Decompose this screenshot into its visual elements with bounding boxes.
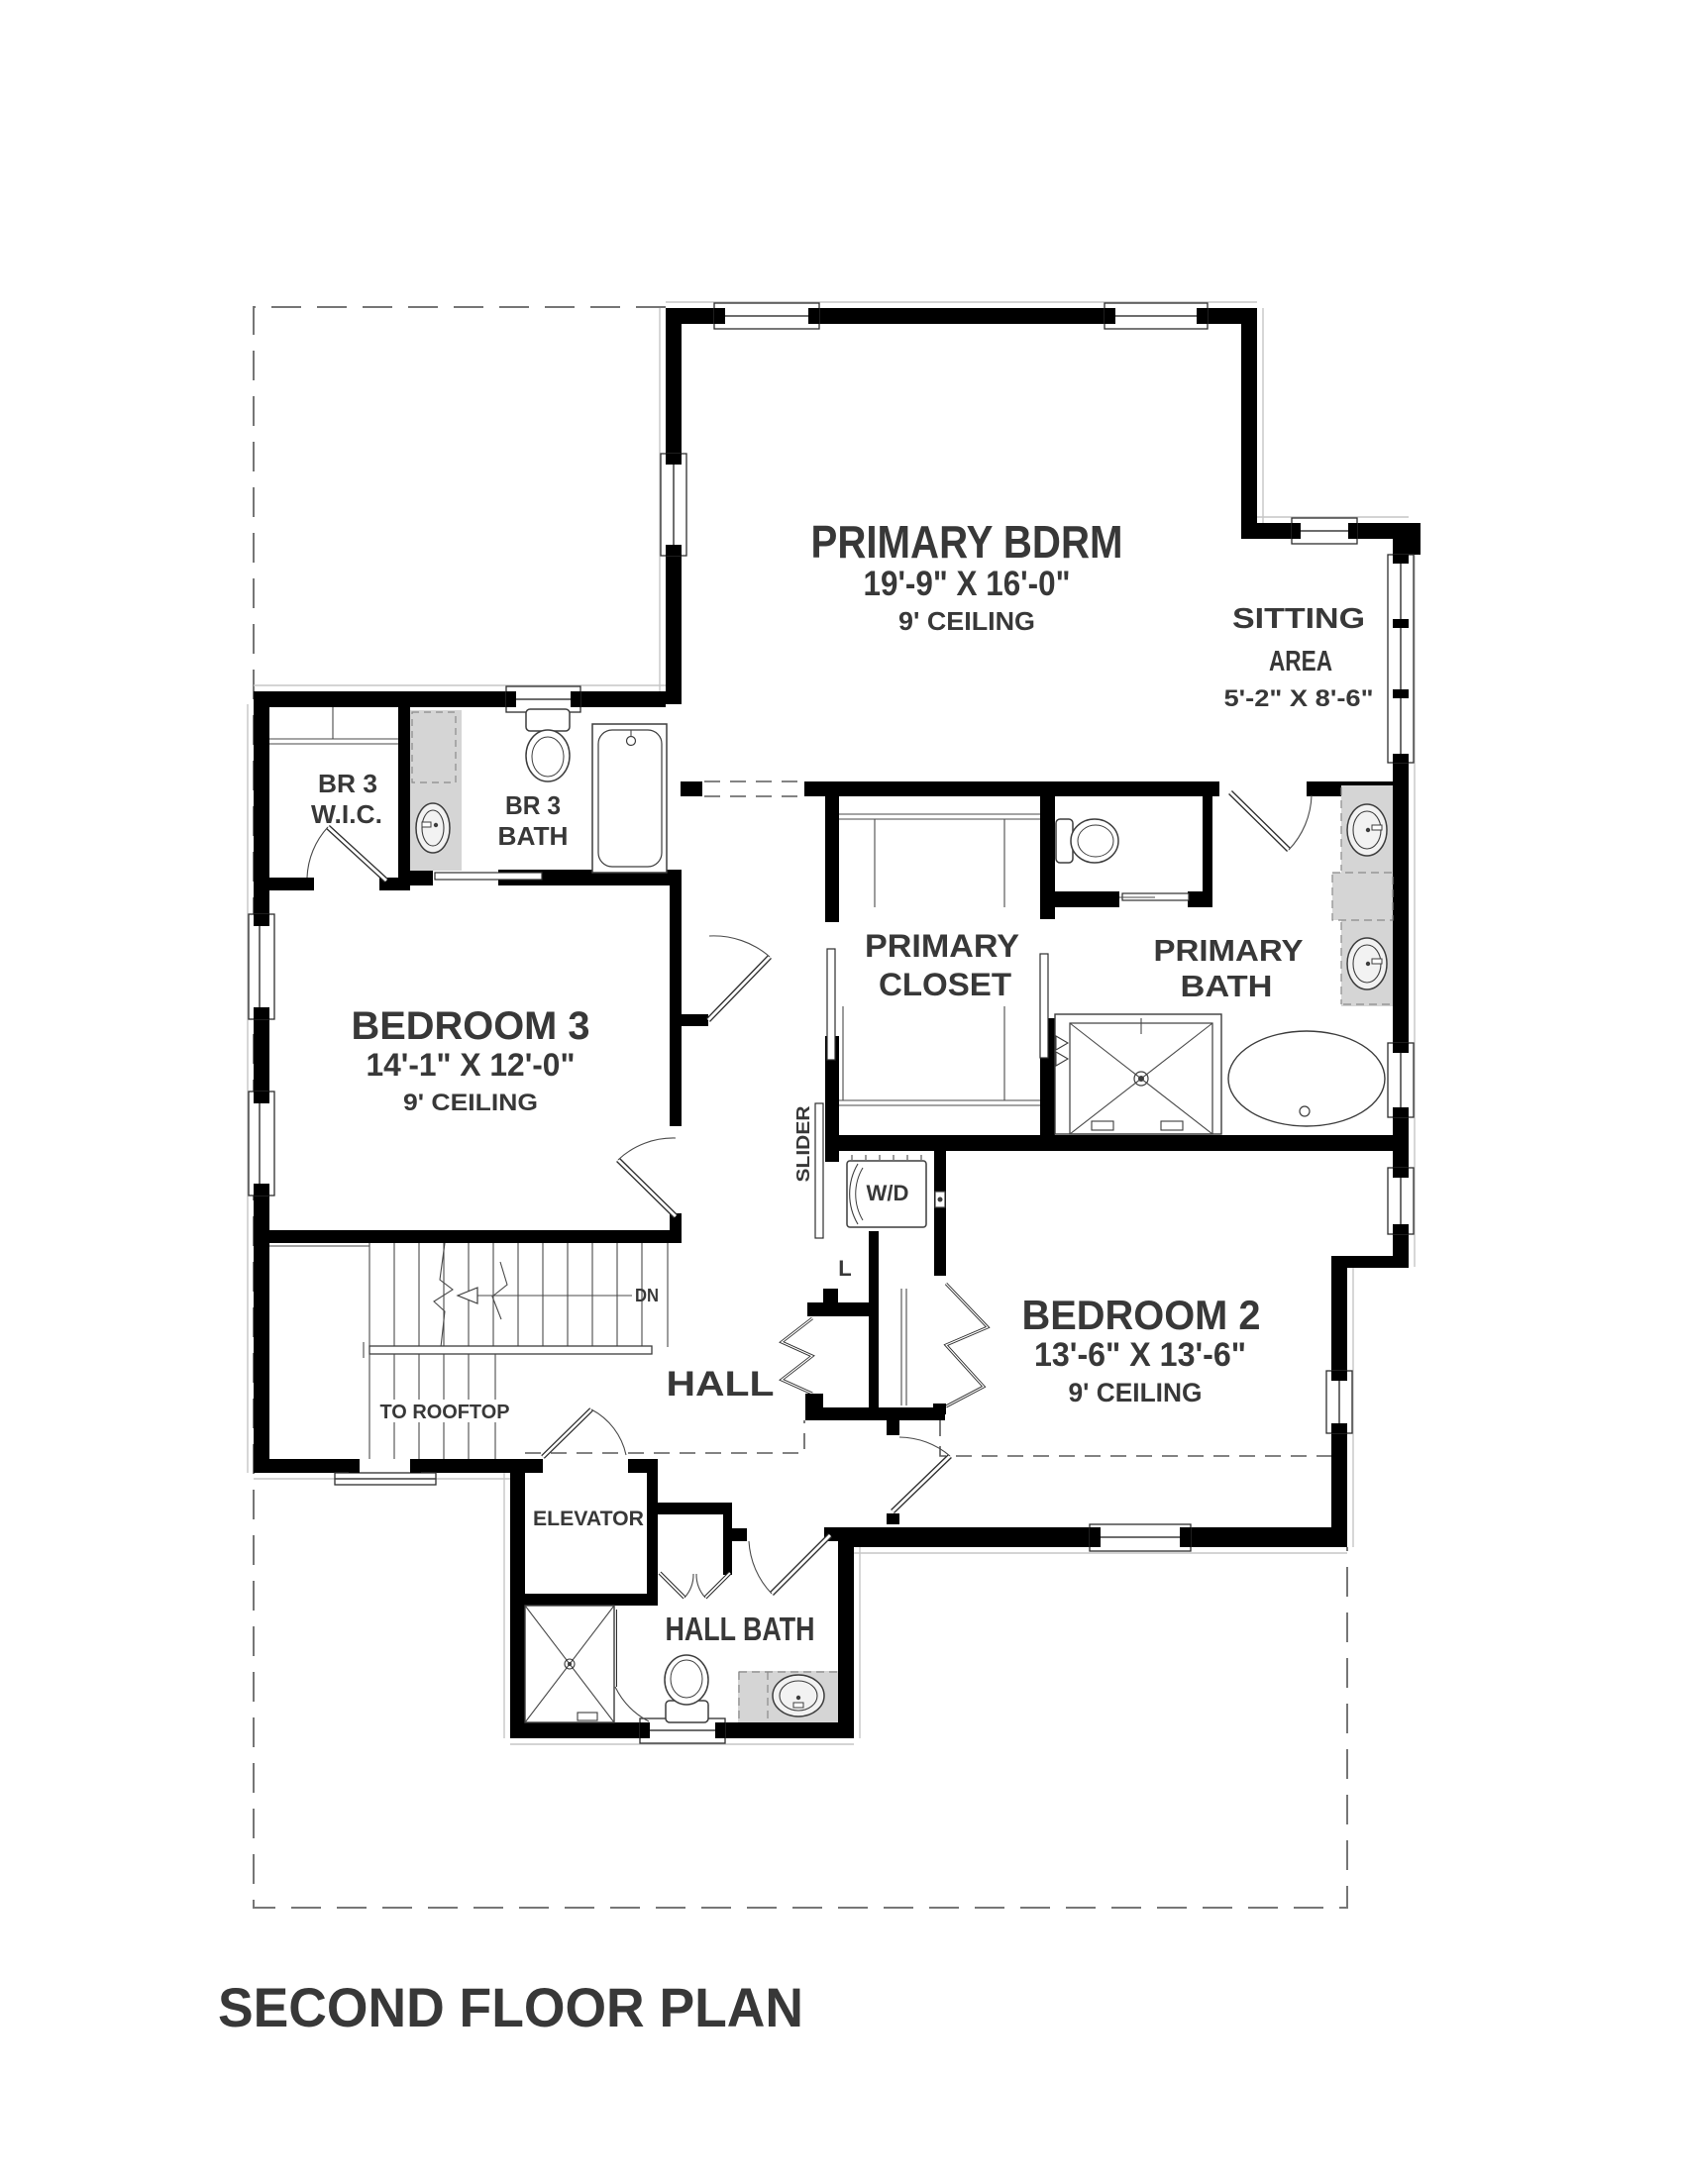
svg-text:BEDROOM 2: BEDROOM 2 — [1022, 1292, 1261, 1338]
svg-text:PRIMARY BDRM: PRIMARY BDRM — [811, 516, 1123, 568]
svg-text:HALL: HALL — [667, 1365, 775, 1404]
svg-text:BATH: BATH — [498, 821, 569, 851]
svg-text:L: L — [838, 1256, 851, 1281]
svg-text:W.I.C.: W.I.C. — [311, 799, 382, 829]
svg-text:AREA: AREA — [1269, 646, 1332, 677]
svg-text:9' CEILING: 9' CEILING — [1069, 1378, 1203, 1407]
svg-text:SITTING: SITTING — [1232, 603, 1365, 635]
svg-text:TO ROOFTOP: TO ROOFTOP — [380, 1402, 510, 1423]
svg-text:BEDROOM 3: BEDROOM 3 — [352, 1004, 590, 1048]
svg-text:9' CEILING: 9' CEILING — [403, 1090, 538, 1116]
svg-text:14'-1" X 12'-0": 14'-1" X 12'-0" — [367, 1047, 576, 1083]
svg-text:PRIMARY: PRIMARY — [865, 928, 1019, 964]
svg-text:BR 3: BR 3 — [505, 790, 561, 820]
svg-text:W/D: W/D — [867, 1181, 909, 1205]
svg-text:SECOND FLOOR PLAN: SECOND FLOOR PLAN — [218, 1976, 803, 2038]
svg-text:5'-2" X 8'-6": 5'-2" X 8'-6" — [1224, 685, 1374, 712]
svg-text:CLOSET: CLOSET — [879, 967, 1011, 1002]
svg-text:HALL BATH: HALL BATH — [666, 1611, 815, 1647]
svg-text:PRIMARY: PRIMARY — [1154, 933, 1304, 968]
svg-text:13'-6" X 13'-6": 13'-6" X 13'-6" — [1034, 1336, 1246, 1374]
svg-text:DN: DN — [635, 1286, 659, 1305]
svg-text:19'-9" X 16'-0": 19'-9" X 16'-0" — [864, 565, 1071, 603]
svg-text:BATH: BATH — [1181, 969, 1273, 1003]
svg-text:BR 3: BR 3 — [318, 769, 377, 798]
svg-text:ELEVATOR: ELEVATOR — [533, 1508, 644, 1530]
svg-text:9' CEILING: 9' CEILING — [898, 606, 1035, 636]
svg-text:SLIDER: SLIDER — [793, 1106, 813, 1183]
